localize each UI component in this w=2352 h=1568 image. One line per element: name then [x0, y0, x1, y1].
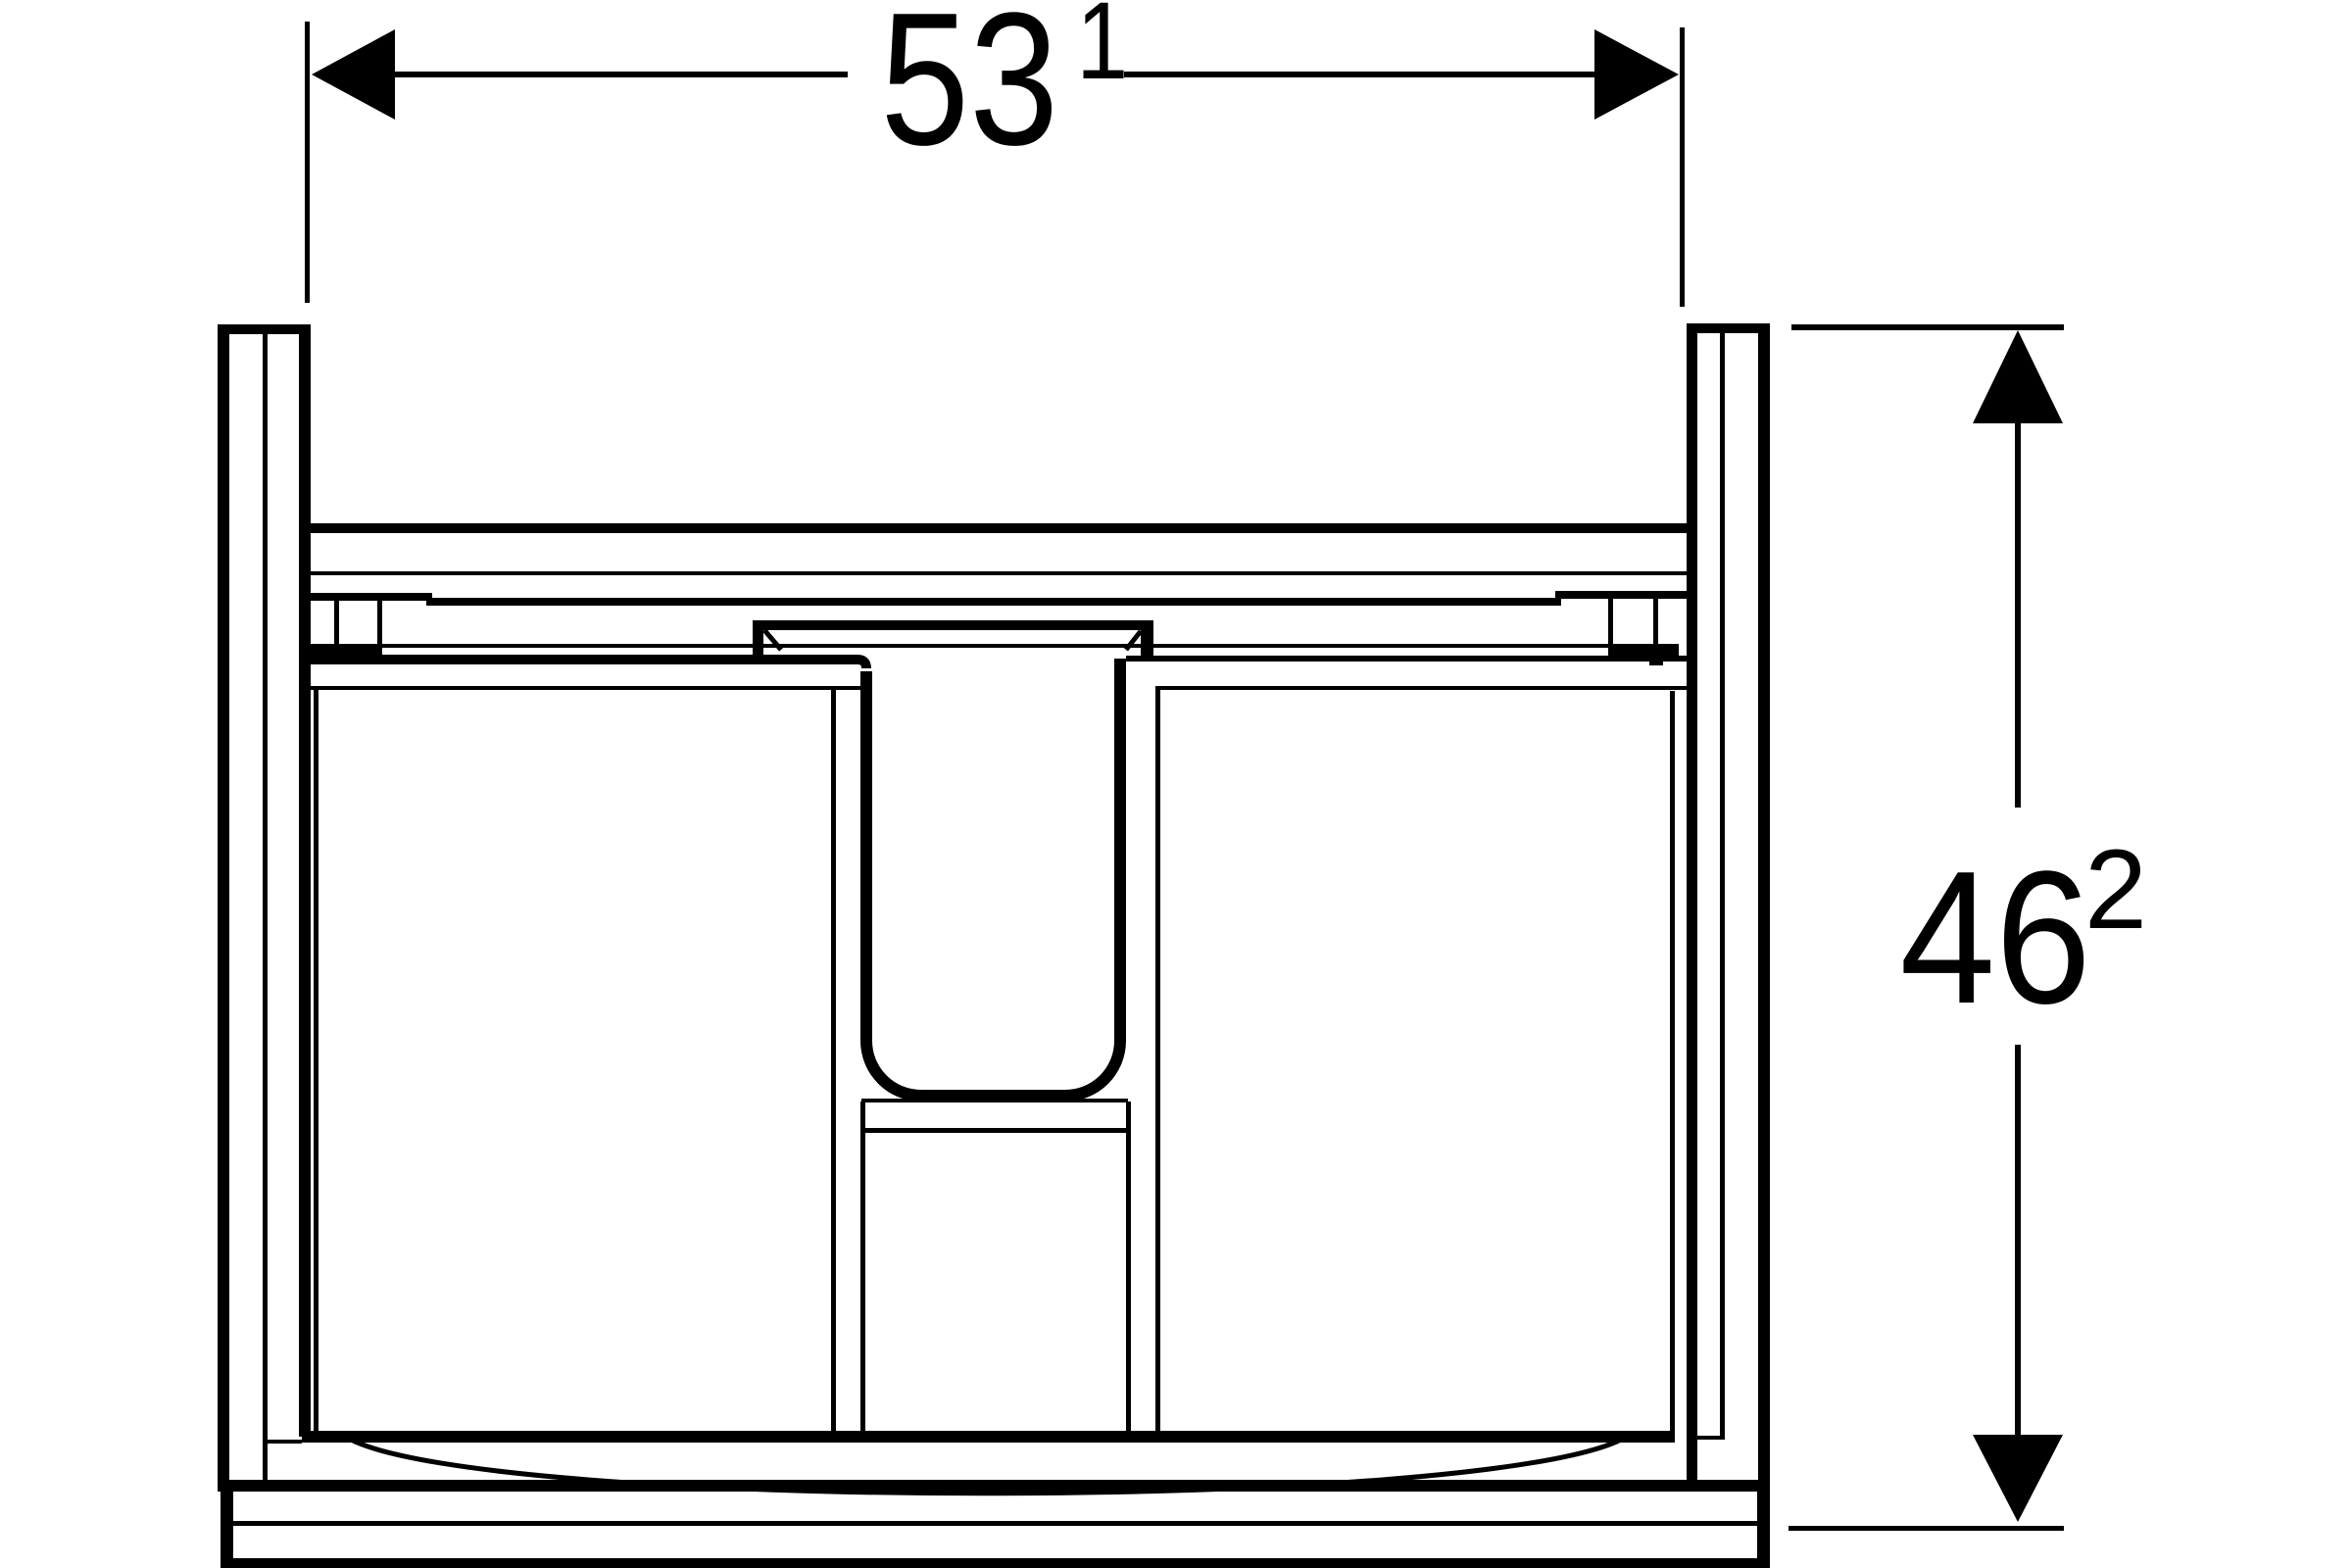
svg-text:53: 53 [880, 0, 1058, 184]
svg-text:2: 2 [2084, 827, 2147, 953]
svg-text:1: 1 [1076, 0, 1128, 103]
svg-text:46: 46 [1899, 832, 2090, 1043]
